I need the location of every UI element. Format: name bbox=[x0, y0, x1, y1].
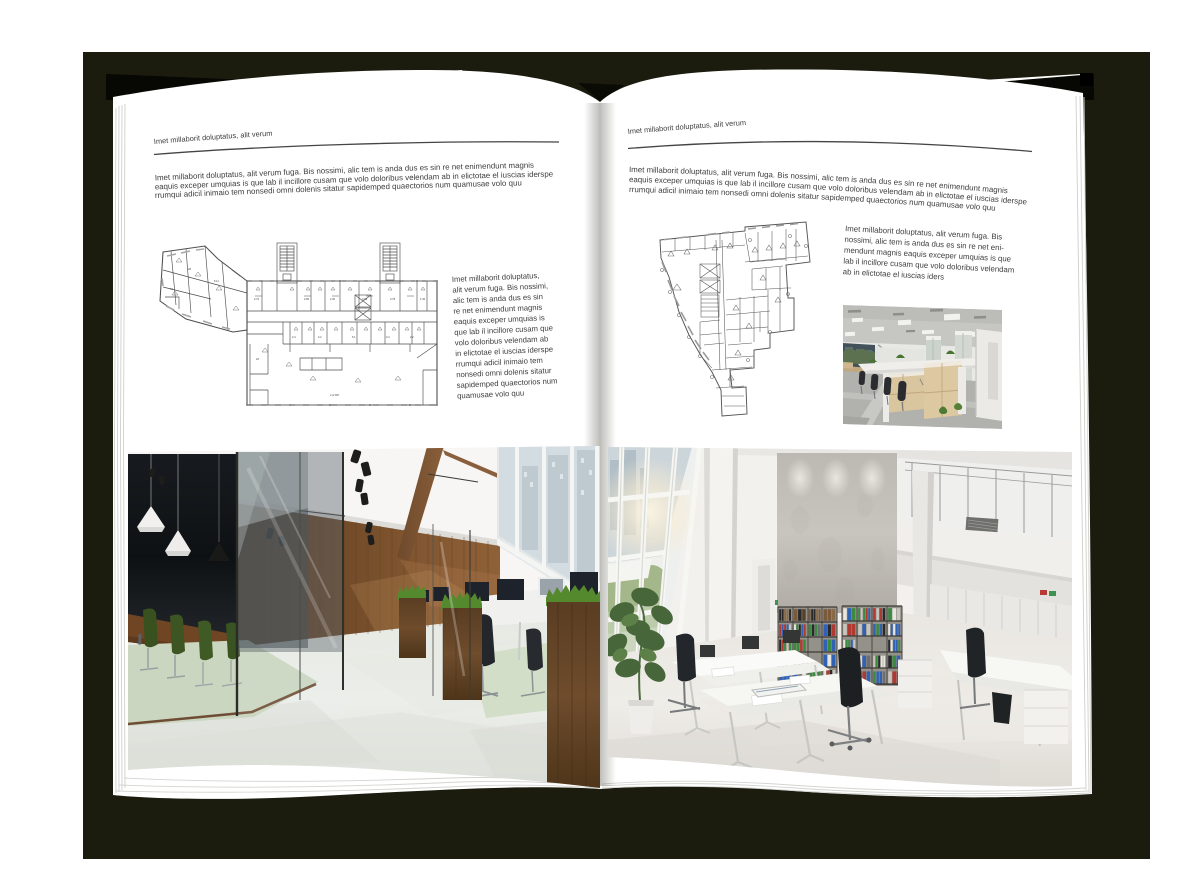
svg-text:3.09: 3.09 bbox=[362, 297, 368, 301]
svg-text:6.1: 6.1 bbox=[352, 335, 356, 339]
svg-text:3.78: 3.78 bbox=[390, 297, 396, 301]
svg-text:2.30: 2.30 bbox=[330, 297, 336, 301]
svg-text:2.2: 2.2 bbox=[410, 335, 414, 339]
svg-text:7.1: 7.1 bbox=[170, 287, 174, 291]
svg-text:2.76: 2.76 bbox=[254, 297, 260, 301]
svg-text:1.45: 1.45 bbox=[420, 297, 426, 301]
svg-text:2.4: 2.4 bbox=[292, 335, 296, 339]
svg-text:2.80: 2.80 bbox=[304, 297, 310, 301]
svg-text:5.11: 5.11 bbox=[214, 279, 219, 283]
svg-text:3.4: 3.4 bbox=[386, 335, 390, 339]
svg-text:4.2: 4.2 bbox=[318, 335, 322, 339]
svg-text:2 of 007: 2 of 007 bbox=[330, 393, 340, 397]
